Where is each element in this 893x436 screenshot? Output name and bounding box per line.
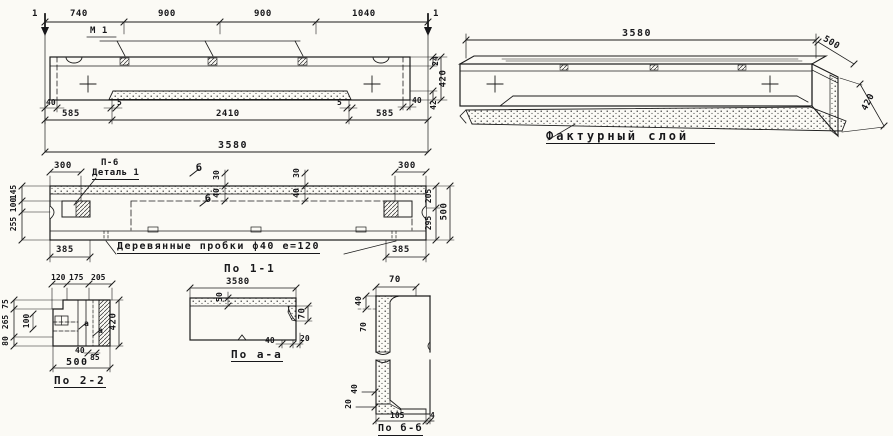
section-marker-1-left: 1 [32,10,38,19]
s22-title: По 2-2 [54,375,106,388]
s11-dim-20: 20 [300,335,310,343]
saa-title: По а-а [231,349,283,362]
dim-3580-total: 3580 [218,141,248,151]
sbb-dim-105: 105 [390,412,404,420]
s22-marker-a2: а [98,327,103,335]
dim-255: 255 [10,204,18,244]
dim-40-a: 40 [213,173,221,213]
sbb-title: По б-б [378,424,423,436]
s22-dim-120: 120 [51,274,65,282]
section-marker-1-right: 1 [433,10,439,19]
dim-40-left: 40 [46,99,56,107]
dim-900-a: 900 [158,10,176,19]
dim-40-b: 40 [293,173,301,213]
wooden-plugs-label: Деревянные пробки ф40 е=120 [117,242,320,254]
s22-dim-80: 80 [2,321,10,361]
s11-dim-50: 50 [216,277,224,317]
dim-300-right: 300 [398,162,416,171]
dim-740: 740 [70,10,88,19]
label-detail-1: Деталь 1 [92,169,139,180]
dim-1040: 1040 [352,10,376,19]
marker-b-top: б [196,164,204,174]
dim-585-right: 585 [376,110,394,119]
facture-layer-label: Фактурный слой [546,130,715,144]
s22-marker-a1: а [84,320,89,328]
dim-40-right: 40 [412,97,422,105]
dim-5-right: 5 [337,99,342,107]
section-b-b-lines [356,284,434,424]
dim-385-left: 385 [56,246,74,255]
dim-2410: 2410 [216,110,240,119]
sbb-dim-70-wall: 70 [360,307,368,347]
section-1-1-lines [187,285,312,348]
dim-900-b: 900 [254,10,272,19]
dim-295: 295 [425,203,433,243]
dim-420-side: 420 [440,59,449,99]
dim-5-left: 5 [117,99,122,107]
s22-dim-205: 205 [91,274,105,282]
s11-dim-40: 40 [265,337,275,345]
dim-500-plan: 500 [441,192,450,232]
dim-300-left: 300 [54,162,72,171]
sbb-dim-70: 70 [389,276,401,285]
s11-dim-70: 70 [299,294,308,334]
sbb-dim-4: 4 [430,412,435,420]
dim-42-side: 42 [430,85,438,125]
isometric-view-lines [460,34,887,140]
s22-dim-40: 40 [75,347,85,355]
s22-dim-500: 500 [66,358,89,368]
s22-dim-85: 85 [90,354,100,362]
dim-585-left: 585 [62,110,80,119]
dim-385-right: 385 [392,246,410,255]
iso-dim-3580: 3580 [622,29,652,39]
s11-title: По 1-1 [224,263,276,274]
s11-dim-3580: 3580 [226,278,250,287]
sbb-dim-20-low: 20 [345,384,353,424]
s22-dim-420: 420 [110,302,119,342]
label-p6: П-6 [101,159,119,168]
blueprint-sheet: 1 1 740 900 900 1040 М 1 40 5 5 40 24 42… [0,0,893,436]
mark-label-m1: М 1 [90,27,108,36]
s22-dim-175: 175 [69,274,83,282]
s22-dim-100: 100 [23,301,31,341]
